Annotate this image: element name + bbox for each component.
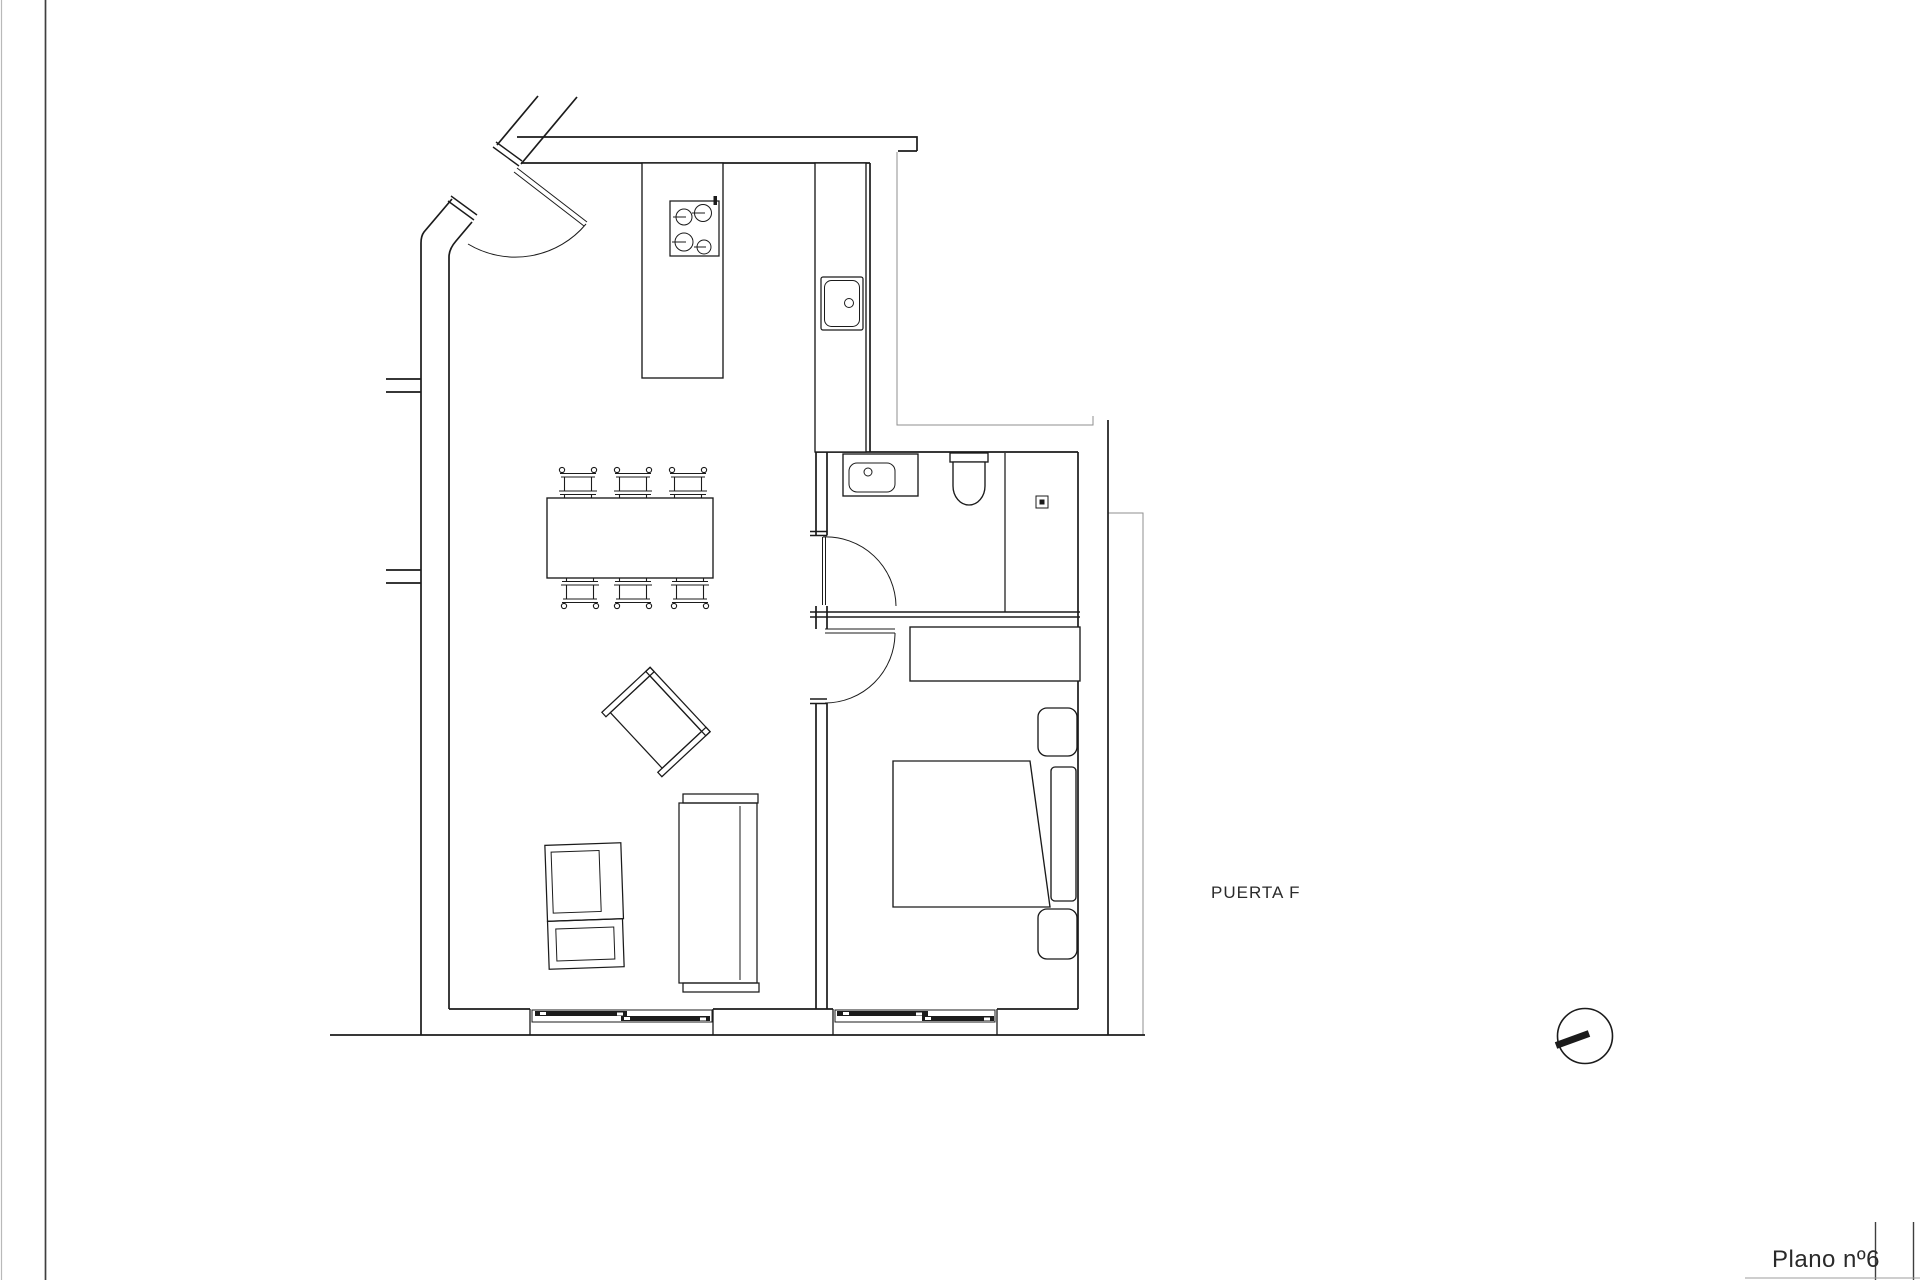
armchair bbox=[602, 667, 710, 776]
tv-unit bbox=[545, 843, 625, 970]
door-swing-arc bbox=[468, 224, 586, 257]
chair bbox=[559, 467, 597, 498]
floor-plan-sheet: PUERTA F Plano nº6 bbox=[0, 0, 1920, 1280]
wardrobe bbox=[910, 627, 1080, 681]
sofa bbox=[679, 794, 759, 992]
kitchen-counter bbox=[815, 163, 866, 452]
nightstand bbox=[1038, 909, 1077, 959]
nightstand bbox=[1038, 708, 1077, 756]
kitchen-island bbox=[642, 163, 723, 378]
clock-symbol-icon bbox=[1556, 1009, 1613, 1064]
dining-set bbox=[547, 467, 713, 608]
door-leaf bbox=[514, 168, 587, 226]
bedroom-door bbox=[810, 629, 895, 704]
toilet-icon bbox=[950, 453, 988, 505]
dining-table bbox=[547, 498, 713, 578]
chair bbox=[614, 467, 652, 498]
floor-plan-drawing bbox=[0, 0, 1920, 1280]
chair bbox=[669, 467, 707, 498]
entrance-door bbox=[448, 142, 587, 257]
door-jamb-ticks bbox=[448, 142, 522, 220]
bedroom-window bbox=[835, 1010, 995, 1022]
shower-drain-icon bbox=[1036, 496, 1048, 508]
bathroom-vanity bbox=[843, 454, 918, 496]
bathroom-door bbox=[810, 532, 896, 607]
bedroom bbox=[810, 627, 1080, 959]
bathroom bbox=[810, 453, 1048, 612]
bed bbox=[893, 761, 1076, 907]
living-room-window bbox=[532, 1010, 712, 1022]
door-label: PUERTA F bbox=[1211, 883, 1301, 903]
sheet-number-label: Plano nº6 bbox=[1772, 1246, 1880, 1274]
chair bbox=[561, 578, 599, 609]
chair bbox=[614, 578, 652, 609]
bed-headboard bbox=[1051, 767, 1076, 901]
chair bbox=[671, 578, 709, 609]
